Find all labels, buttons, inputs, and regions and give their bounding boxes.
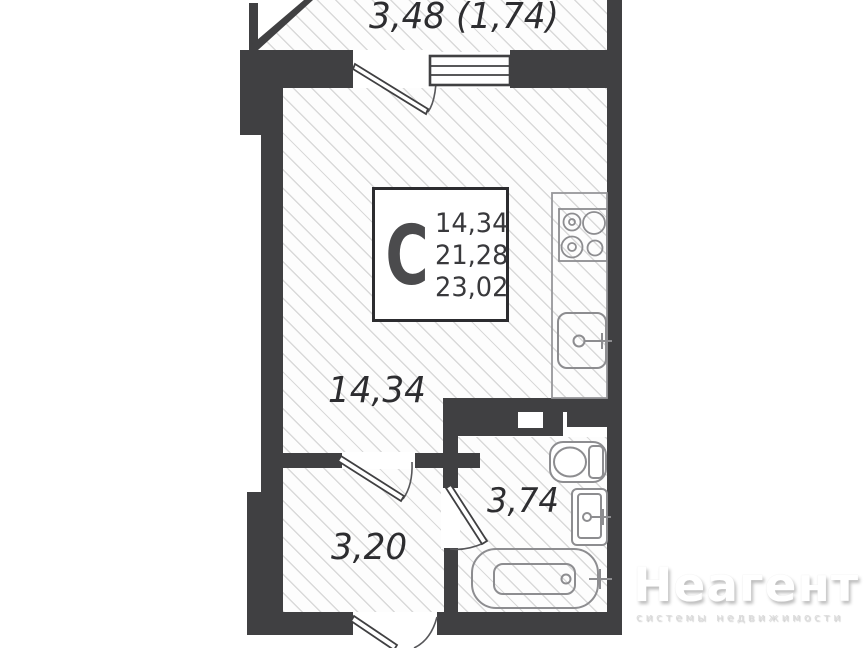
area-living: 14,34 — [435, 208, 508, 240]
room-dimension-label: 14,34 — [328, 370, 426, 411]
toilet-icon — [550, 442, 606, 482]
stove-icon — [559, 209, 607, 261]
unit-type-letter: С — [385, 216, 428, 298]
balcony-corner-wall — [250, 0, 313, 50]
area-total: 23,02 — [435, 272, 508, 304]
interior-door-arc — [403, 462, 412, 499]
bathroom-dimension-label: 3,74 — [487, 481, 559, 521]
balcony-door-leaf — [353, 64, 428, 114]
balcony-window — [430, 56, 510, 85]
entry-door-arc — [414, 617, 437, 648]
watermark-brand: Неагент — [633, 558, 859, 613]
entry-door-leaf — [351, 616, 397, 648]
floor-plan: С 14,34 21,28 23,02 3,48 (1,74) 14,34 3,… — [0, 0, 864, 648]
fixtures-layer — [0, 0, 864, 648]
bathroom-sink-icon — [572, 489, 611, 545]
interior-door-leaf — [338, 456, 404, 501]
bathtub-icon — [472, 549, 612, 608]
kitchen-sink-icon — [558, 313, 612, 368]
bathroom-door-arc — [450, 543, 484, 549]
info-box: С 14,34 21,28 23,02 — [372, 187, 509, 322]
hallway-dimension-label: 3,20 — [331, 527, 407, 568]
balcony-dimension-label: 3,48 (1,74) — [369, 0, 559, 37]
area-usable: 21,28 — [435, 240, 508, 272]
watermark-tagline: системы недвижимости — [636, 611, 844, 624]
bathroom-door-leaf — [446, 485, 487, 544]
